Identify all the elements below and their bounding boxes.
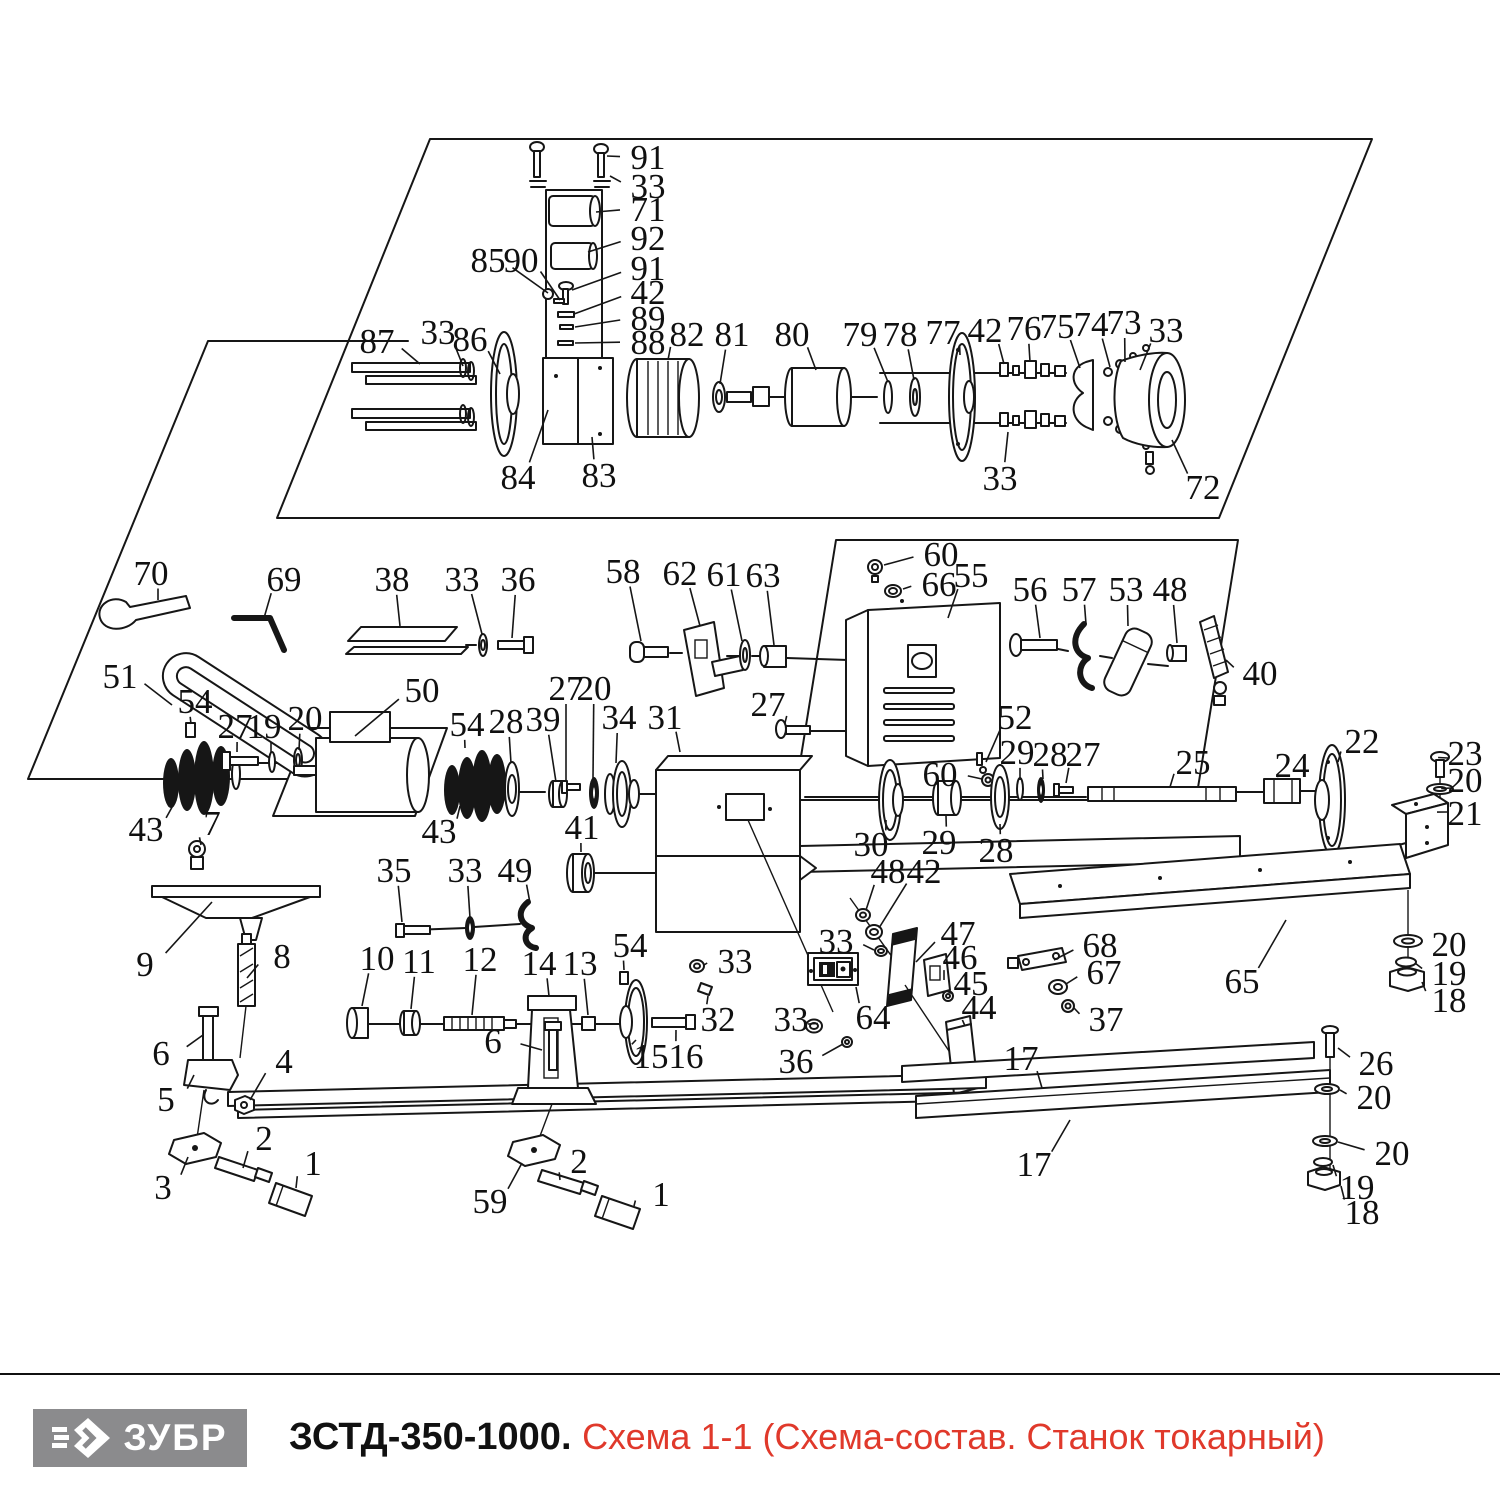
leader-line bbox=[187, 1035, 203, 1047]
part-label-44: 44 bbox=[962, 988, 997, 1027]
leader-line bbox=[468, 886, 470, 918]
part-label-33: 33 bbox=[1149, 311, 1184, 350]
part-label-90: 90 bbox=[504, 241, 539, 280]
zubr-arrow-icon bbox=[52, 1416, 114, 1460]
footer-subtitle: Схема 1-1 (Схема-состав. Станок токарный… bbox=[582, 1416, 1325, 1457]
brand-logo: ЗУБР bbox=[33, 1409, 247, 1467]
part-label-33: 33 bbox=[774, 1000, 809, 1039]
part-label-76: 76 bbox=[1007, 309, 1042, 348]
leader-line bbox=[1415, 963, 1422, 969]
leader-line bbox=[1338, 1142, 1365, 1150]
leader-line bbox=[508, 1163, 522, 1189]
leader-line bbox=[704, 963, 707, 965]
part-label-20: 20 bbox=[1375, 1134, 1410, 1173]
part-label-33: 33 bbox=[445, 560, 480, 599]
part-label-85: 85 bbox=[471, 241, 506, 280]
leader-line bbox=[1340, 1090, 1347, 1094]
part-label-88: 88 bbox=[631, 323, 666, 362]
part-label-4: 4 bbox=[275, 1042, 293, 1081]
part-label-77: 77 bbox=[926, 313, 961, 352]
part-label-67: 67 bbox=[1087, 953, 1122, 992]
part-label-54: 54 bbox=[450, 705, 485, 744]
part-label-60: 60 bbox=[923, 755, 958, 794]
leader-line bbox=[822, 1044, 843, 1056]
part-label-18: 18 bbox=[1432, 981, 1467, 1020]
part-label-27: 27 bbox=[1066, 735, 1101, 774]
part-label-15: 15 bbox=[634, 1037, 669, 1076]
part-label-83: 83 bbox=[582, 456, 617, 495]
part-label-2: 2 bbox=[570, 1142, 588, 1181]
part-label-36: 36 bbox=[779, 1042, 814, 1081]
part-label-51: 51 bbox=[103, 657, 138, 696]
part-label-48: 48 bbox=[1153, 570, 1188, 609]
part-label-5: 5 bbox=[157, 1080, 175, 1119]
part-label-35: 35 bbox=[377, 851, 412, 890]
part-label-24: 24 bbox=[1275, 746, 1310, 785]
part-label-1: 1 bbox=[304, 1144, 322, 1183]
leader-line bbox=[634, 1201, 635, 1207]
leader-line bbox=[1074, 1008, 1080, 1014]
part-label-29: 29 bbox=[1000, 733, 1035, 772]
leader-line bbox=[593, 704, 594, 778]
part-label-86: 86 bbox=[453, 320, 488, 359]
part-label-16: 16 bbox=[669, 1037, 704, 1076]
part-label-79: 79 bbox=[843, 315, 878, 354]
part-label-66: 66 bbox=[922, 565, 957, 604]
part-label-33: 33 bbox=[718, 942, 753, 981]
leader-line bbox=[549, 735, 556, 782]
part-label-13: 13 bbox=[563, 944, 598, 983]
part-label-59: 59 bbox=[473, 1182, 508, 1221]
part-label-56: 56 bbox=[1013, 570, 1048, 609]
model-number: ЗСТД-350-1000. bbox=[289, 1416, 572, 1458]
leader-line bbox=[808, 1024, 818, 1025]
leader-line bbox=[690, 588, 700, 626]
part-label-55: 55 bbox=[954, 556, 989, 595]
part-label-1: 1 bbox=[652, 1175, 670, 1214]
part-label-78: 78 bbox=[883, 315, 918, 354]
leader-line bbox=[472, 594, 482, 634]
part-label-31: 31 bbox=[648, 698, 683, 737]
part-label-20: 20 bbox=[1357, 1078, 1392, 1117]
part-label-17: 17 bbox=[1017, 1145, 1052, 1184]
part-label-14: 14 bbox=[522, 944, 557, 983]
part-label-48: 48 bbox=[871, 852, 906, 891]
footer: ЗУБР ЗСТД-350-1000. Схема 1-1 (Схема-сос… bbox=[0, 1375, 1500, 1500]
leader-line bbox=[397, 595, 400, 626]
exploded-view-diagram: 9133719285909142898887338682818079787742… bbox=[0, 0, 1500, 1373]
part-label-74: 74 bbox=[1074, 305, 1109, 344]
part-label-11: 11 bbox=[402, 942, 436, 981]
part-label-3: 3 bbox=[154, 1168, 172, 1207]
part-label-87: 87 bbox=[360, 322, 395, 361]
part-label-6: 6 bbox=[152, 1034, 170, 1073]
leader-line bbox=[1052, 1120, 1070, 1152]
part-label-25: 25 bbox=[1176, 743, 1211, 782]
part-label-34: 34 bbox=[602, 698, 637, 737]
part-label-7: 7 bbox=[203, 804, 221, 843]
part-label-69: 69 bbox=[267, 560, 302, 599]
leader-line bbox=[863, 945, 874, 950]
part-label-63: 63 bbox=[746, 556, 781, 595]
part-label-54: 54 bbox=[178, 682, 213, 721]
leader-line bbox=[1338, 1048, 1350, 1057]
leader-line bbox=[559, 1172, 560, 1180]
part-label-17: 17 bbox=[1004, 1039, 1039, 1078]
part-label-54: 54 bbox=[613, 926, 648, 965]
leader-line bbox=[731, 590, 742, 642]
part-label-10: 10 bbox=[360, 939, 395, 978]
part-label-28: 28 bbox=[489, 702, 524, 741]
leader-line bbox=[616, 733, 617, 763]
part-label-28: 28 bbox=[979, 831, 1014, 870]
part-label-9: 9 bbox=[136, 945, 154, 984]
part-label-41: 41 bbox=[565, 808, 600, 847]
leader-line bbox=[607, 156, 620, 157]
leader-line bbox=[296, 1176, 297, 1188]
part-label-52: 52 bbox=[998, 698, 1033, 737]
part-label-57: 57 bbox=[1062, 570, 1097, 609]
brand-logo-text: ЗУБР bbox=[123, 1419, 227, 1456]
leader-line bbox=[1066, 977, 1077, 984]
part-label-43: 43 bbox=[422, 812, 457, 851]
schema-title: ЗСТД-350-1000. Схема 1-1 (Схема-состав. … bbox=[289, 1416, 1325, 1459]
drive-row bbox=[154, 644, 1453, 1012]
part-label-61: 61 bbox=[707, 555, 742, 594]
part-label-72: 72 bbox=[1186, 468, 1221, 507]
part-label-50: 50 bbox=[405, 671, 440, 710]
leader-line bbox=[362, 973, 369, 1006]
part-label-2: 2 bbox=[255, 1119, 273, 1158]
part-label-65: 65 bbox=[1225, 962, 1260, 1001]
part-label-8: 8 bbox=[273, 937, 291, 976]
part-label-33: 33 bbox=[421, 313, 456, 352]
page: 9133719285909142898887338682818079787742… bbox=[0, 0, 1500, 1500]
leader-line bbox=[1258, 920, 1286, 968]
part-label-64: 64 bbox=[856, 998, 891, 1037]
part-label-62: 62 bbox=[663, 554, 698, 593]
part-label-18: 18 bbox=[1345, 1193, 1380, 1232]
part-label-58: 58 bbox=[606, 552, 641, 591]
part-label-84: 84 bbox=[501, 458, 536, 497]
leader-line bbox=[584, 979, 588, 1015]
leader-line bbox=[630, 587, 641, 642]
leader-line bbox=[398, 886, 402, 922]
part-label-38: 38 bbox=[375, 560, 410, 599]
part-label-43: 43 bbox=[129, 810, 164, 849]
part-label-75: 75 bbox=[1040, 307, 1075, 346]
part-label-80: 80 bbox=[775, 315, 810, 354]
part-label-73: 73 bbox=[1107, 303, 1142, 342]
part-label-70: 70 bbox=[134, 554, 169, 593]
part-label-33: 33 bbox=[448, 851, 483, 890]
part-label-33: 33 bbox=[983, 459, 1018, 498]
part-label-36: 36 bbox=[501, 560, 536, 599]
leader-line bbox=[767, 591, 774, 645]
part-label-49: 49 bbox=[498, 851, 533, 890]
leader-line bbox=[1438, 758, 1448, 759]
part-label-12: 12 bbox=[463, 940, 498, 979]
part-label-22: 22 bbox=[1345, 722, 1380, 761]
part-label-6: 6 bbox=[484, 1022, 502, 1061]
part-label-81: 81 bbox=[715, 315, 750, 354]
part-label-42: 42 bbox=[907, 852, 942, 891]
leader-line bbox=[472, 975, 476, 1015]
leader-line bbox=[575, 342, 620, 343]
part-label-32: 32 bbox=[701, 1000, 736, 1039]
part-label-37: 37 bbox=[1089, 1000, 1124, 1039]
part-label-28: 28 bbox=[1033, 735, 1068, 774]
part-label-82: 82 bbox=[670, 315, 705, 354]
leader-line bbox=[512, 595, 515, 638]
part-label-19: 19 bbox=[247, 707, 282, 746]
part-label-33: 33 bbox=[819, 922, 854, 961]
part-label-40: 40 bbox=[1243, 654, 1278, 693]
leader-line bbox=[411, 977, 414, 1009]
part-label-21: 21 bbox=[1448, 794, 1483, 833]
part-label-42: 42 bbox=[968, 311, 1003, 350]
part-label-27: 27 bbox=[751, 685, 786, 724]
part-label-53: 53 bbox=[1109, 570, 1144, 609]
part-label-20: 20 bbox=[288, 699, 323, 738]
